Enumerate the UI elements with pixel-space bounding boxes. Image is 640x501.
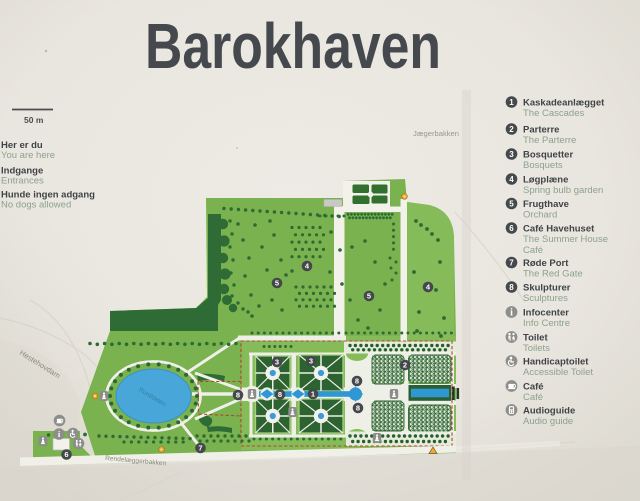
svg-text:Audio guide: Audio guide [523, 416, 573, 427]
svg-text:Parterre: Parterre [523, 125, 559, 136]
svg-text:Café: Café [523, 392, 543, 403]
svg-text:Café: Café [523, 382, 544, 393]
svg-text:The Summer House: The Summer House [523, 234, 608, 245]
svg-text:Café Havehuset: Café Havehuset [523, 224, 595, 235]
svg-text:2: 2 [403, 361, 407, 370]
svg-text:Kaskadeanlægget: Kaskadeanlægget [523, 98, 605, 109]
svg-text:Toilet: Toilet [523, 333, 548, 344]
svg-text:Toilets: Toilets [523, 343, 550, 354]
svg-text:Skulpturer: Skulpturer [523, 283, 571, 294]
svg-text:Barokhaven: Barokhaven [145, 10, 441, 82]
svg-text:6: 6 [64, 450, 68, 459]
svg-text:3: 3 [509, 150, 514, 159]
svg-text:8: 8 [236, 391, 240, 400]
svg-text:The Cascades: The Cascades [523, 108, 585, 119]
svg-text:4: 4 [509, 175, 514, 184]
svg-text:6: 6 [509, 224, 514, 233]
svg-text:1: 1 [509, 98, 514, 107]
svg-text:8: 8 [278, 390, 282, 399]
svg-text:Info Centre: Info Centre [523, 318, 570, 329]
svg-text:The Red Gate: The Red Gate [523, 269, 583, 280]
svg-text:i: i [510, 308, 513, 319]
svg-text:5: 5 [509, 200, 514, 209]
svg-text:Café: Café [523, 245, 543, 256]
svg-text:Handicaptoilet: Handicaptoilet [523, 357, 589, 368]
svg-text:No dogs allowed: No dogs allowed [1, 200, 71, 211]
svg-text:Frugthave: Frugthave [523, 199, 569, 210]
svg-text:8: 8 [356, 404, 360, 413]
svg-text:50 m: 50 m [24, 115, 44, 125]
svg-text:1: 1 [311, 390, 315, 399]
svg-text:Spring bulb garden: Spring bulb garden [523, 185, 603, 196]
svg-text:2: 2 [509, 125, 514, 134]
svg-text:7: 7 [198, 444, 202, 453]
svg-text:Røde Port: Røde Port [523, 258, 569, 269]
svg-text:Løgplæne: Løgplæne [523, 175, 568, 186]
svg-text:Infocenter: Infocenter [523, 308, 569, 319]
svg-text:3: 3 [275, 358, 279, 367]
svg-text:Audioguide: Audioguide [523, 406, 575, 417]
svg-text:Sculptures: Sculptures [523, 293, 568, 304]
svg-text:5: 5 [367, 292, 371, 301]
svg-text:8: 8 [509, 283, 514, 292]
svg-text:You are here: You are here [1, 150, 55, 161]
svg-text:Entrances: Entrances [1, 176, 44, 187]
svg-text:Jægerbakken: Jægerbakken [413, 129, 459, 138]
svg-text:Bosquets: Bosquets [523, 160, 563, 171]
svg-text:8: 8 [355, 377, 359, 386]
svg-text:5: 5 [275, 279, 279, 288]
svg-text:Bosquetter: Bosquetter [523, 150, 573, 161]
svg-text:Orchard: Orchard [523, 210, 557, 221]
svg-text:3: 3 [309, 357, 313, 366]
svg-text:Accessible Toilet: Accessible Toilet [523, 367, 593, 378]
svg-text:The Parterre: The Parterre [523, 135, 576, 146]
svg-text:7: 7 [509, 259, 514, 268]
